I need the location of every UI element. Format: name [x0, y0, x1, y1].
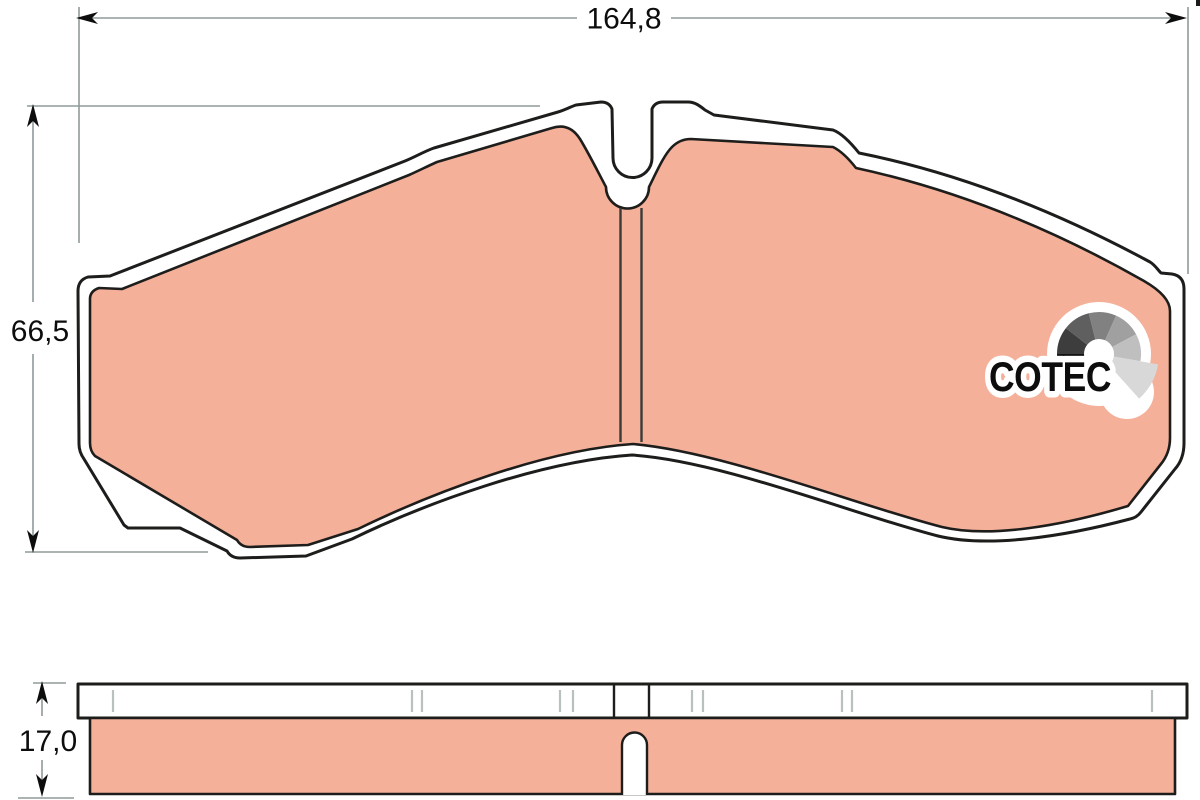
dimension-thickness: 17,0 — [18, 681, 77, 798]
brake-pad-technical-drawing: 164,8 66,5 — [0, 0, 1200, 800]
backplate-side — [78, 684, 1187, 718]
logo-brand-text: COTEC — [989, 353, 1111, 400]
center-slot — [622, 733, 647, 796]
pad-side-view — [78, 684, 1187, 795]
dimension-height-label: 66,5 — [11, 315, 69, 348]
drawing-svg: 164,8 66,5 — [0, 0, 1200, 800]
pad-top-view: COTEC — [78, 102, 1184, 558]
scan-artifact — [1196, 0, 1200, 6]
dimension-width-label: 164,8 — [586, 3, 661, 36]
dimension-thickness-label: 17,0 — [19, 725, 77, 758]
